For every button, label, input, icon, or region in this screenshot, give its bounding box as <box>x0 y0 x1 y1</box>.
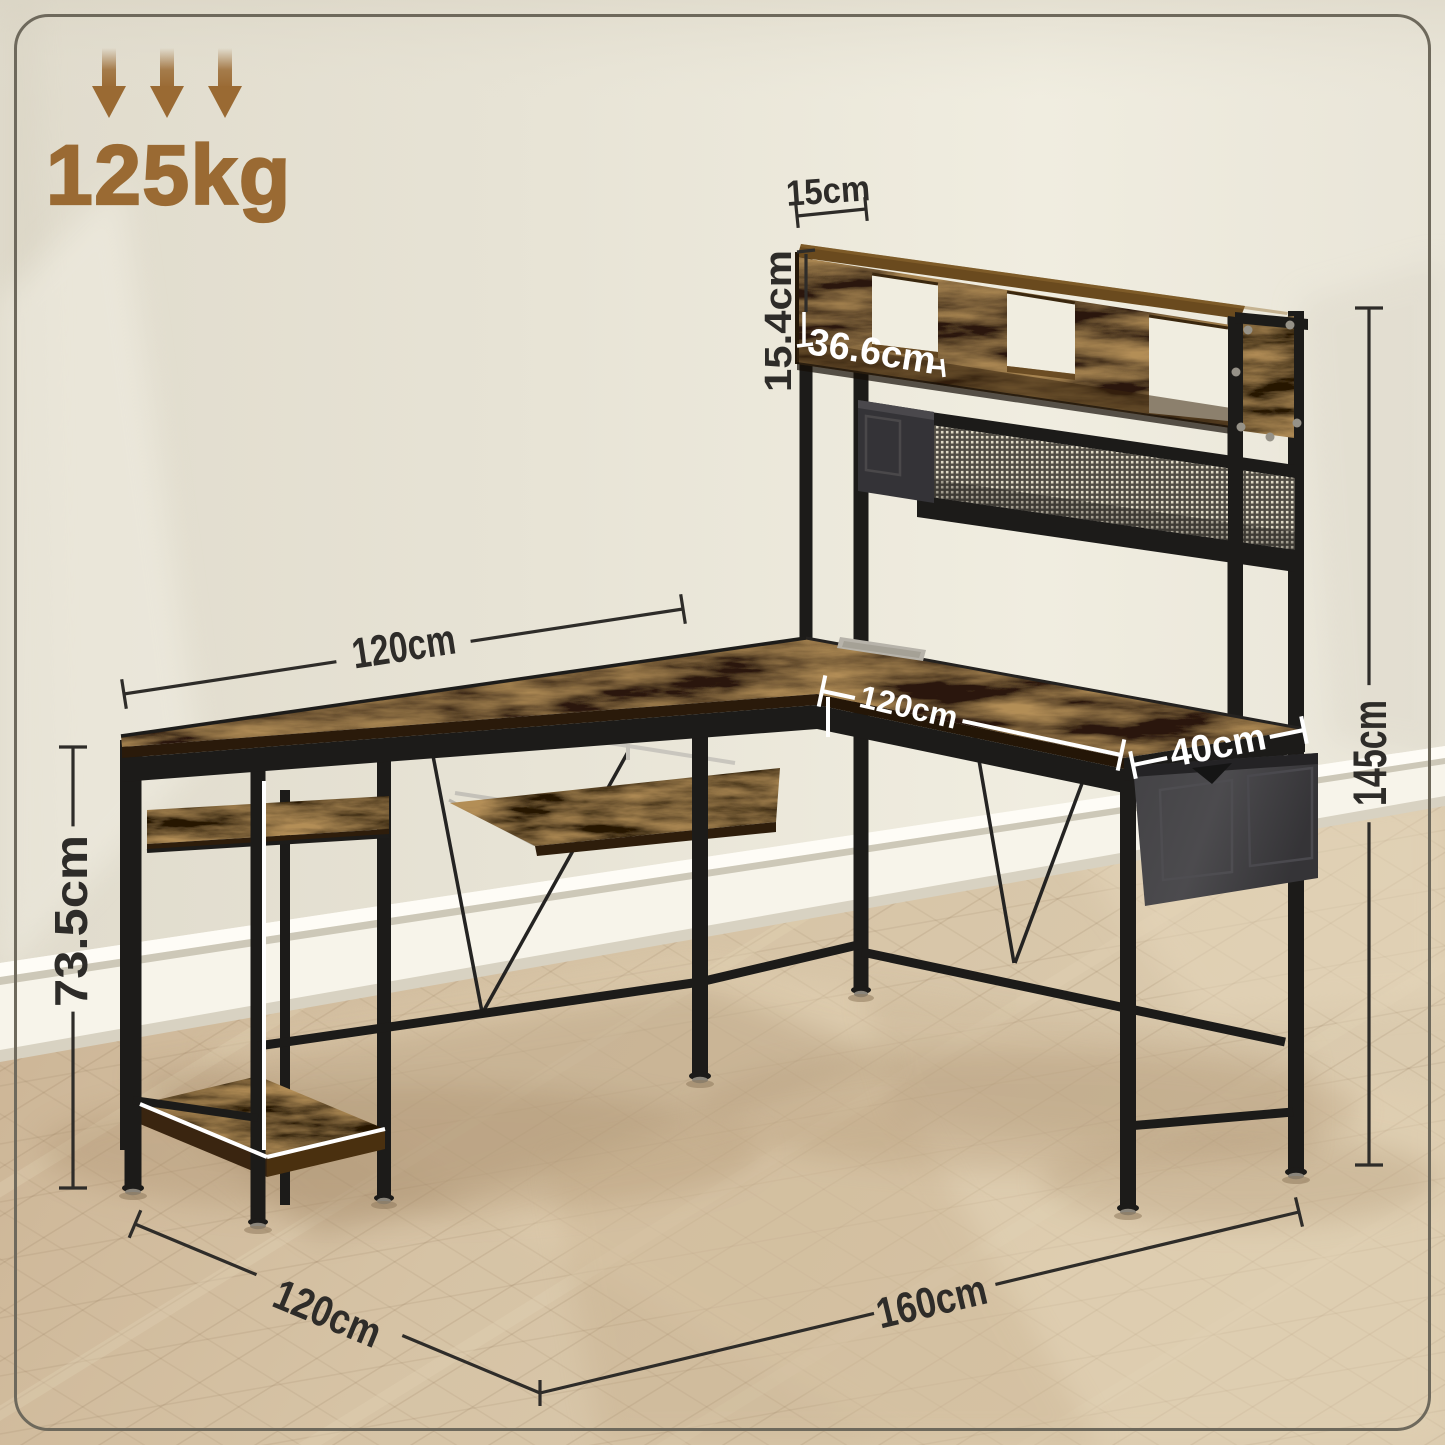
svg-text:145cm: 145cm <box>1343 700 1396 806</box>
svg-text:73.5cm: 73.5cm <box>45 835 97 1007</box>
svg-text:125kg: 125kg <box>46 128 292 222</box>
svg-text:15cm: 15cm <box>785 167 872 214</box>
svg-text:15.4cm: 15.4cm <box>758 250 800 392</box>
